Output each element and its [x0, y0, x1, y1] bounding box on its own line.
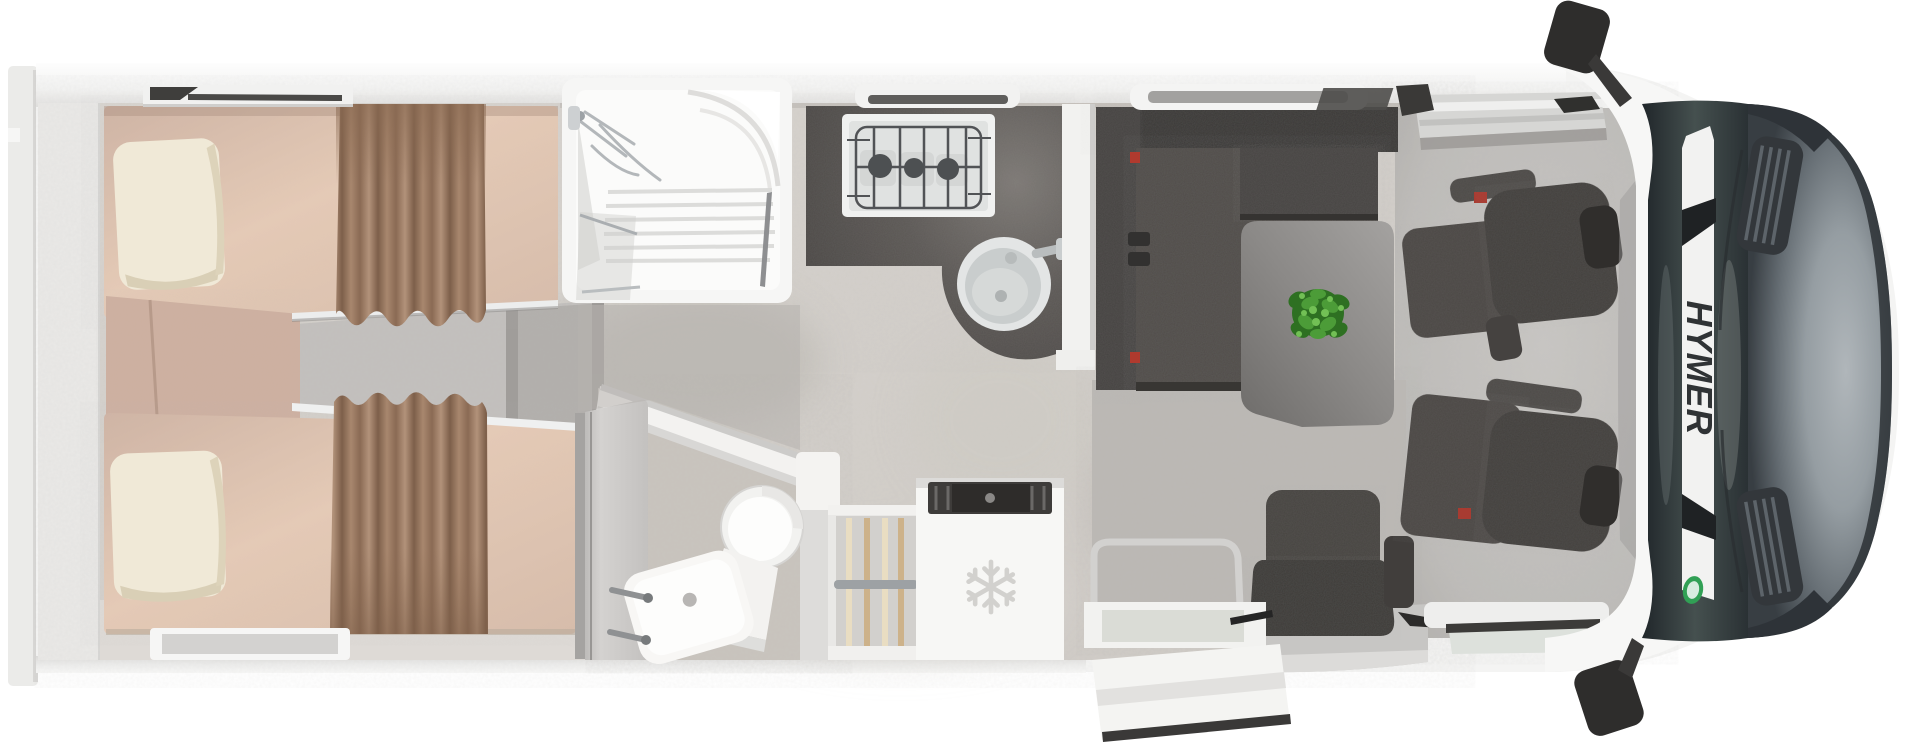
svg-text:HYMER: HYMER	[1679, 300, 1720, 435]
